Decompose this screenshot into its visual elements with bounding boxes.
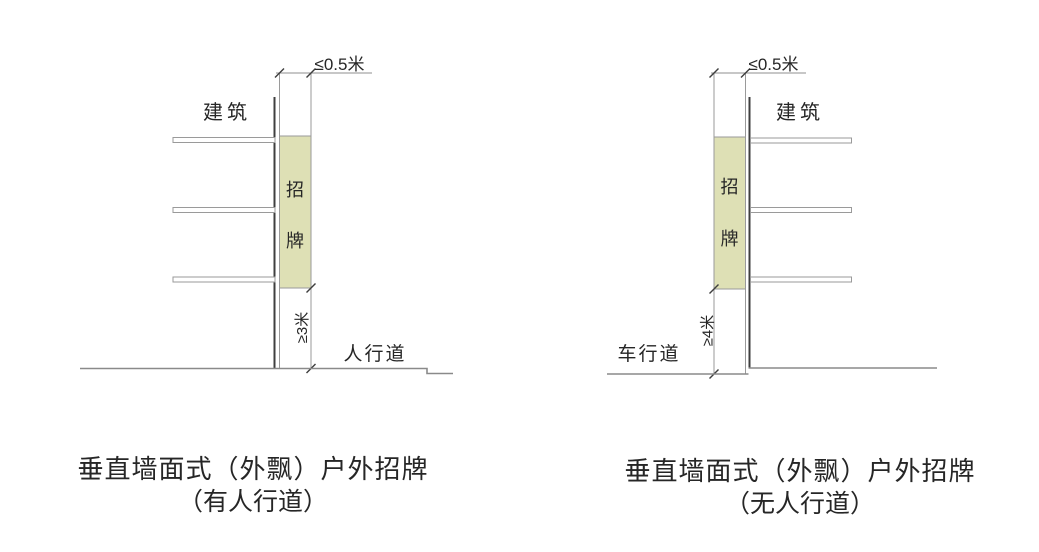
ground-line-sidewalk	[80, 369, 453, 374]
floor-slab	[173, 138, 275, 143]
sign-label-char: 牌	[286, 231, 305, 251]
sign-panel	[714, 137, 746, 289]
top-dimension-label: ≤0.5米	[749, 55, 799, 74]
floor-slab	[173, 277, 275, 282]
clearance-dimension-label: ≥3米	[294, 312, 311, 344]
caption-line-2: （有人行道）	[178, 488, 328, 516]
caption-line-1: 垂直墙面式（外飘）户外招牌	[624, 456, 975, 486]
building-label: 建筑	[203, 101, 251, 124]
floor-slab	[751, 138, 852, 143]
ground-label: 车行道	[617, 343, 680, 365]
ground-label: 人行道	[343, 343, 406, 365]
sign-label-char: 牌	[721, 229, 740, 249]
top-dimension-label: ≤0.5米	[315, 55, 365, 74]
floor-slab	[751, 208, 852, 213]
regulation-diagram-canvas: 建筑 招 牌 ≤0.5米 ≥3米 人行道 垂直墙面式（外飘）户外招牌 （有人行道…	[0, 0, 1039, 547]
sign-label-char: 招	[721, 177, 740, 197]
sign-panel	[280, 136, 312, 288]
floor-slab	[173, 208, 275, 213]
diagram-left-with-sidewalk: 建筑 招 牌 ≤0.5米 ≥3米 人行道 垂直墙面式（外飘）户外招牌 （有人行道…	[77, 55, 453, 516]
caption-line-1: 垂直墙面式（外飘）户外招牌	[77, 454, 428, 484]
building-label: 建筑	[776, 101, 824, 124]
floor-slab	[751, 277, 852, 282]
clearance-dimension-label: ≥4米	[700, 315, 717, 347]
caption-line-2: （无人行道）	[725, 490, 875, 518]
sign-label-char: 招	[286, 180, 305, 200]
diagram-right-no-sidewalk: 建筑 招 牌 ≤0.5米 ≥4米 车行道 垂直墙面式（外飘）户外招牌 （无人行道…	[607, 55, 976, 518]
